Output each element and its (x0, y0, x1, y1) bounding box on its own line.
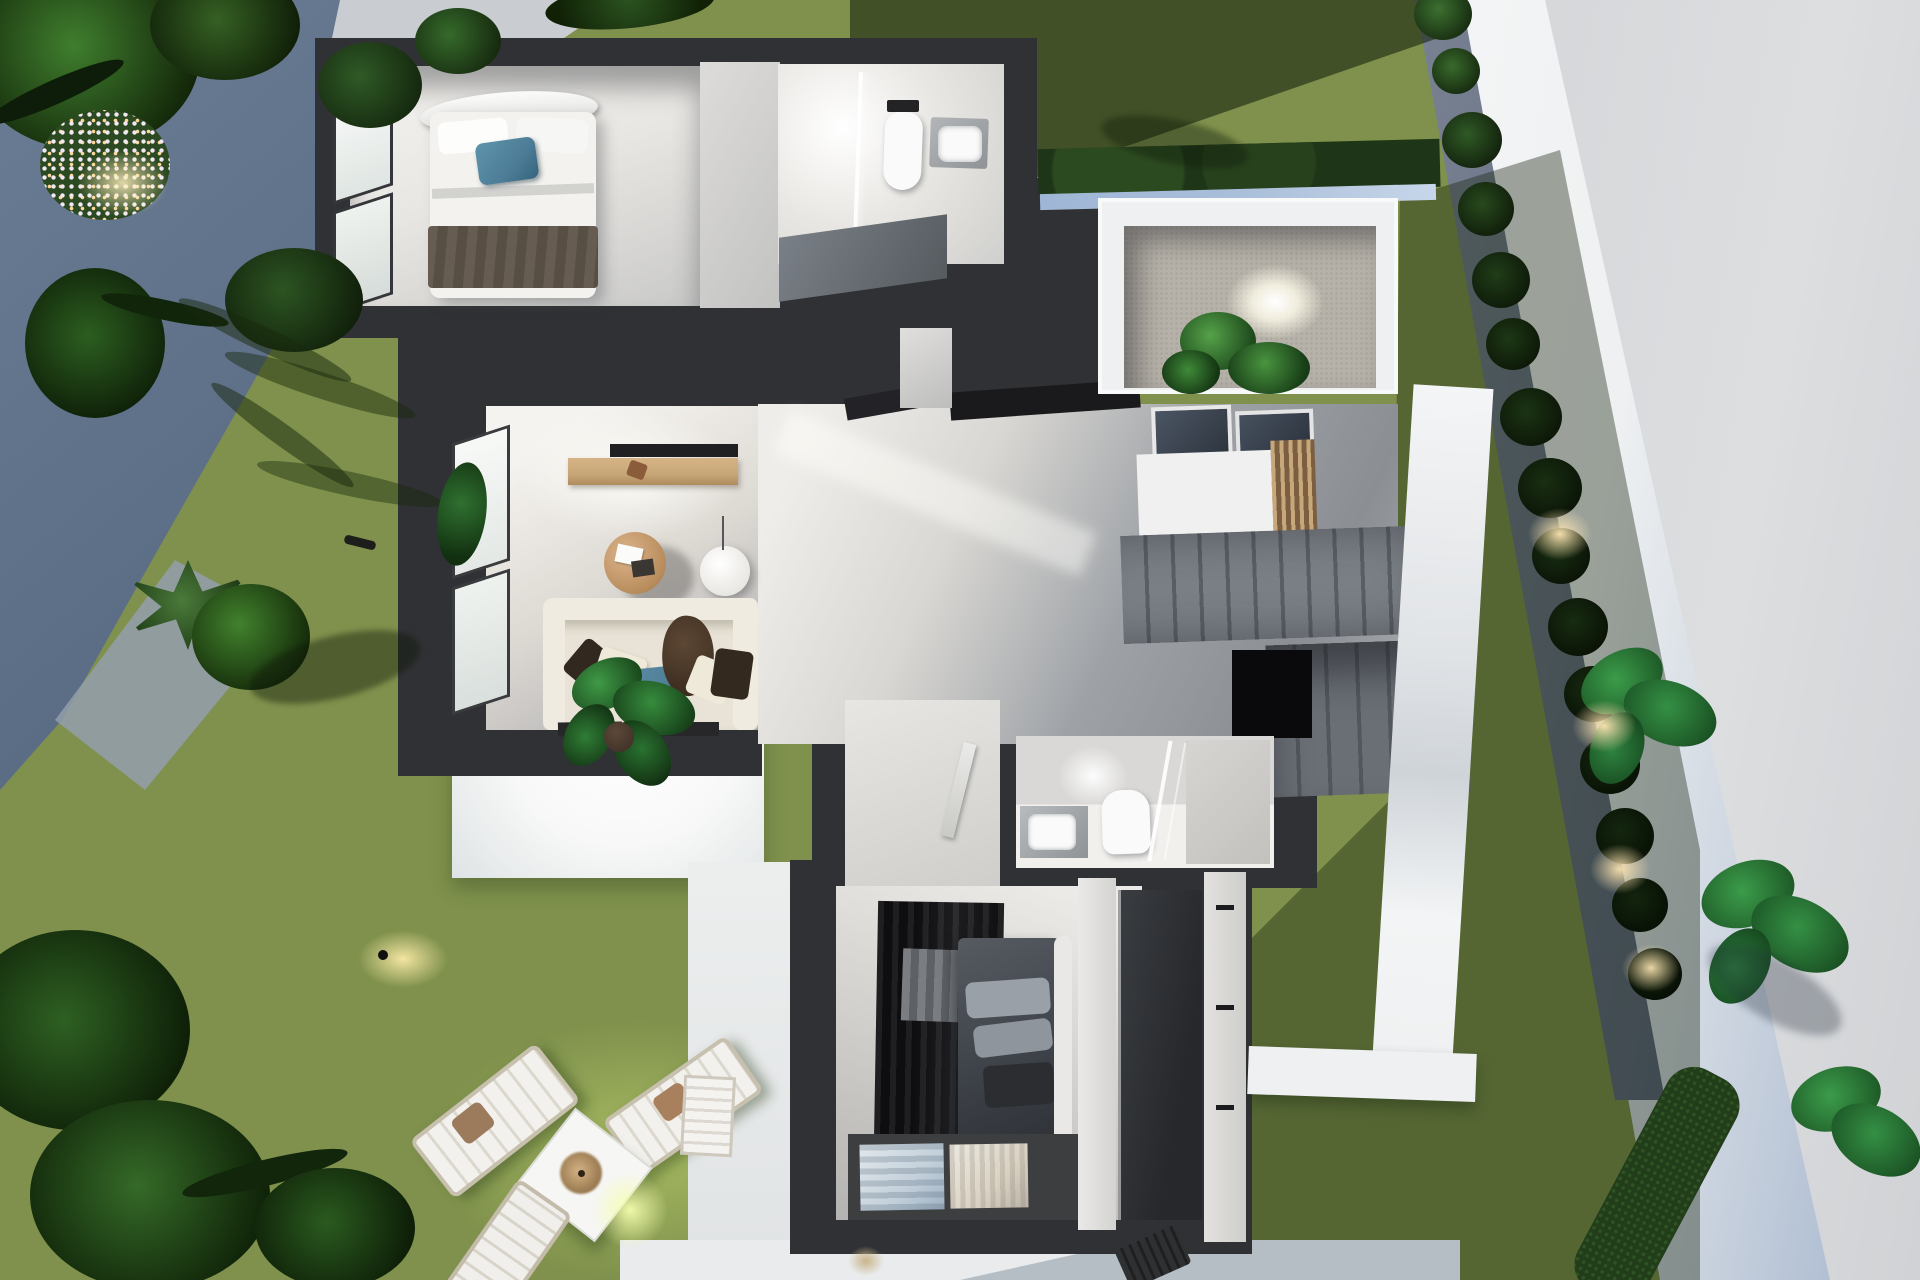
closet-column (1204, 872, 1246, 1242)
toilet-2 (1101, 789, 1151, 855)
bed1-throw-blanket (428, 226, 598, 288)
living-window-2 (452, 569, 510, 716)
border-bush-15 (1628, 948, 1682, 1000)
media-console (568, 458, 738, 485)
palm-canopy-midleft (25, 268, 165, 418)
border-bush-4 (1458, 182, 1514, 236)
border-bush-7 (1500, 388, 1562, 446)
bed2-pillow-1 (965, 977, 1051, 1019)
floor-lamp-stem (722, 516, 724, 550)
closet-handle-2 (1216, 1005, 1234, 1010)
ground-light-1 (378, 950, 388, 960)
sofa-pillow-dark-2 (710, 648, 754, 701)
sofa-arm-left (543, 600, 565, 730)
bed1-blue-pillow (474, 136, 539, 186)
border-bush-6 (1486, 318, 1540, 370)
rug-print-blue (859, 1143, 944, 1210)
courtyard-fern-2 (1228, 342, 1310, 394)
sink-1-basin (938, 126, 982, 162)
rug-print-tan (949, 1143, 1028, 1208)
border-bush-5 (1472, 252, 1530, 308)
border-bush-14 (1612, 878, 1668, 932)
border-bush-2 (1432, 48, 1480, 94)
timber-slat-screen (1270, 439, 1317, 538)
bush-top-1 (318, 42, 422, 128)
shower2-tray (1186, 740, 1270, 864)
aerial-villa-render (0, 0, 1920, 1280)
pavement-sprig (848, 1246, 884, 1276)
coffee-table-tray (631, 559, 655, 578)
border-bush-8 (1518, 458, 1582, 518)
floor-lamp-shade (700, 546, 750, 596)
palm-canopy-bottom-3 (255, 1168, 415, 1280)
mid-marble-pillar (900, 328, 952, 408)
bed2-headboard (1054, 936, 1072, 1146)
bedroom1-divider-wall (700, 62, 780, 308)
bed2-cushion-dark (983, 1062, 1056, 1109)
parasol-pole-dot (578, 1170, 585, 1177)
closet-marble-band (1078, 878, 1116, 1230)
terrace-plant-pot (604, 722, 634, 752)
closet-glass-tray (1118, 890, 1202, 1220)
house-bottom-wall-band (1247, 1046, 1477, 1102)
border-bush-10 (1548, 598, 1608, 656)
border-bush-9 (1532, 528, 1590, 584)
courtyard-fern-3 (1162, 350, 1220, 394)
closet-handle-1 (1216, 905, 1234, 910)
flower-bed (40, 110, 170, 220)
white-slat-chair (680, 1075, 736, 1158)
closet-handle-3 (1216, 1105, 1234, 1110)
border-bush-13 (1596, 808, 1654, 864)
bush-top-2 (415, 8, 501, 74)
border-bush-3 (1442, 112, 1502, 168)
tv-panel (610, 444, 738, 457)
stairwell-void (1232, 650, 1312, 738)
toilet-1 (883, 111, 924, 190)
sink-2-basin (1028, 814, 1076, 850)
toilet-1-flush-plate (887, 100, 919, 112)
corridor-floor (845, 700, 1000, 886)
